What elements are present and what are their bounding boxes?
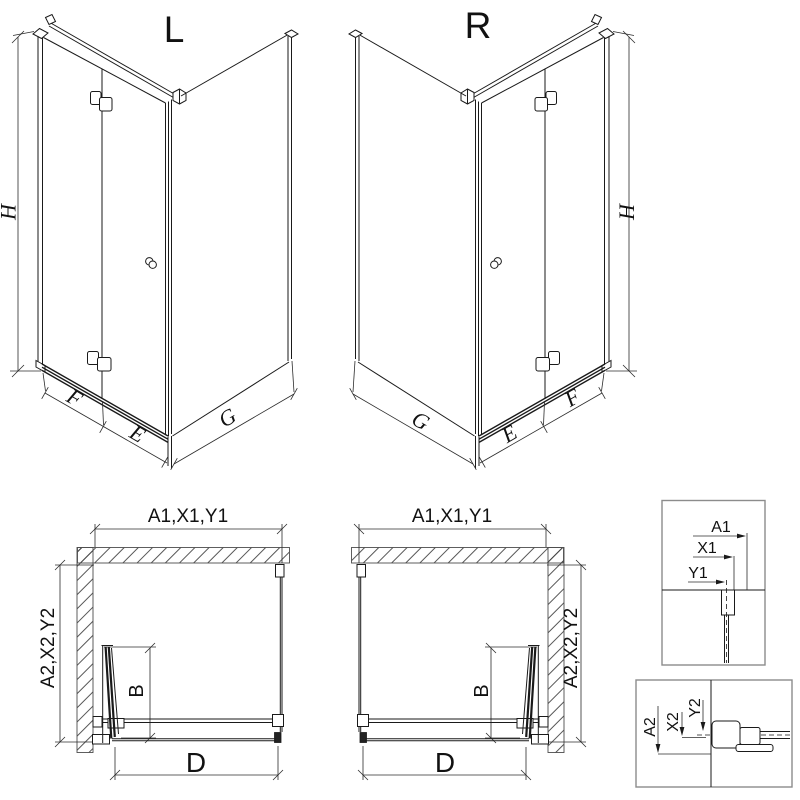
plan-right-view: A1,X1,Y1 A2,X2,Y2 B D <box>352 506 587 780</box>
iso-right-dim-h: H <box>614 203 639 221</box>
plan-right-dim-top: A1,X1,Y1 <box>412 506 492 527</box>
detail-a1-box: A1 X1 Y1 <box>662 501 765 666</box>
iso-left-dim-h: H <box>0 203 21 221</box>
detail-dim-x1: X1 <box>697 540 717 557</box>
iso-right-geometry <box>349 15 637 470</box>
detail-dim-x2: X2 <box>665 712 682 732</box>
plan-right-dim-b: B <box>471 684 493 697</box>
detail-dim-a2: A2 <box>642 717 659 737</box>
plan-left-dim-d: D <box>186 747 206 778</box>
iso-left-dim-e: E <box>125 419 150 448</box>
plan-left-view: A1,X1,Y1 A2,X2,Y2 B D <box>38 506 290 780</box>
plan-right-dim-side: A2,X2,Y2 <box>561 608 582 688</box>
iso-left-geometry <box>10 15 298 470</box>
iso-left-label: L <box>164 9 185 50</box>
detail-a2-box: A2 X2 Y2 <box>636 680 792 787</box>
iso-left-view: L H F E G <box>0 9 298 470</box>
plan-left-side-wall <box>77 548 93 753</box>
shower-enclosure-technical-drawing: L H F E G R H G E F A1,X1,Y1 A2,X2,Y2 B … <box>0 0 800 800</box>
iso-left-dim-f: F <box>62 383 87 412</box>
iso-right-label: R <box>465 5 492 46</box>
plan-left-dim-side: A2,X2,Y2 <box>38 608 59 688</box>
iso-right-dim-e: E <box>496 419 521 448</box>
drawing-canvas: L H F E G R H G E F A1,X1,Y1 A2,X2,Y2 B … <box>0 0 800 800</box>
iso-right-dim-f: F <box>559 383 584 412</box>
detail-dim-a1: A1 <box>711 519 731 536</box>
iso-right-dim-g: G <box>408 406 434 436</box>
iso-right-view: R H G E F <box>349 5 639 470</box>
plan-left-top-wall <box>78 548 290 564</box>
plan-left-dim-b: B <box>126 684 148 697</box>
plan-right-dim-d: D <box>435 747 455 778</box>
detail-dim-y1: Y1 <box>688 565 708 582</box>
plan-right-top-wall <box>352 548 564 564</box>
plan-left-dim-top: A1,X1,Y1 <box>148 506 228 527</box>
detail-dim-y2: Y2 <box>687 698 704 718</box>
wall-profile-section <box>712 721 740 748</box>
wall-profile-section <box>722 590 735 615</box>
